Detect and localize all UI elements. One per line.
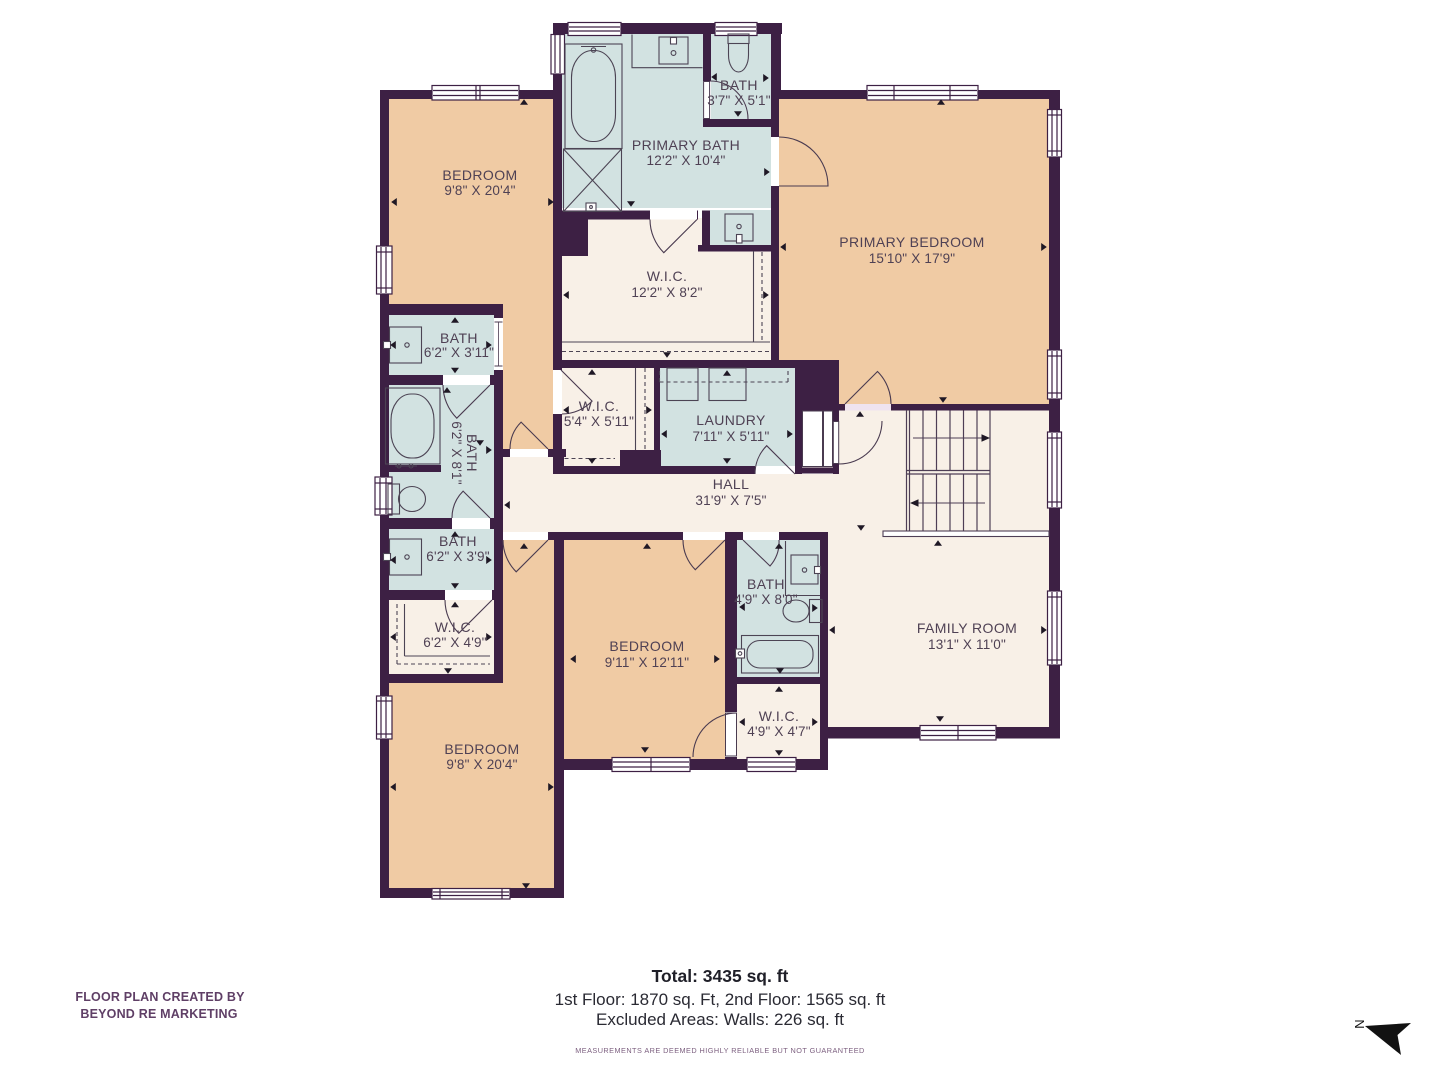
svg-text:BATH: BATH xyxy=(440,330,478,346)
svg-text:3'7" X 5'1": 3'7" X 5'1" xyxy=(707,93,770,108)
svg-text:6'2" X 3'9": 6'2" X 3'9" xyxy=(426,549,489,564)
svg-text:W.I.C.: W.I.C. xyxy=(759,708,800,724)
svg-text:9'8" X 20'4": 9'8" X 20'4" xyxy=(444,183,515,198)
svg-text:FAMILY ROOM: FAMILY ROOM xyxy=(917,620,1017,636)
svg-text:6'2" X 4'9": 6'2" X 4'9" xyxy=(423,635,486,650)
svg-text:Excluded Areas: Walls: 226 sq.: Excluded Areas: Walls: 226 sq. ft xyxy=(596,1010,844,1029)
svg-text:BEDROOM: BEDROOM xyxy=(444,741,519,757)
svg-text:7'11" X 5'11": 7'11" X 5'11" xyxy=(693,429,770,444)
svg-text:9'11" X 12'11": 9'11" X 12'11" xyxy=(605,655,690,670)
svg-text:N: N xyxy=(1352,1019,1367,1028)
svg-text:BEDROOM: BEDROOM xyxy=(442,167,517,183)
svg-text:1st Floor: 1870 sq. Ft, 2nd Fl: 1st Floor: 1870 sq. Ft, 2nd Floor: 1565 … xyxy=(555,990,886,1009)
svg-text:12'2" X 10'4": 12'2" X 10'4" xyxy=(647,153,726,168)
svg-text:13'1" X 11'0": 13'1" X 11'0" xyxy=(928,637,1006,652)
svg-text:4'9" X 4'7": 4'9" X 4'7" xyxy=(747,724,810,739)
svg-text:12'2" X 8'2": 12'2" X 8'2" xyxy=(631,285,702,300)
svg-text:PRIMARY BATH: PRIMARY BATH xyxy=(632,137,740,153)
svg-text:PRIMARY BEDROOM: PRIMARY BEDROOM xyxy=(839,234,985,250)
svg-text:W.I.C.: W.I.C. xyxy=(647,268,688,284)
svg-text:6'2" X 8'1": 6'2" X 8'1" xyxy=(449,421,464,484)
svg-text:6'2" X 3'11": 6'2" X 3'11" xyxy=(424,345,494,360)
svg-text:W.I.C.: W.I.C. xyxy=(435,619,476,635)
svg-text:15'10" X 17'9": 15'10" X 17'9" xyxy=(869,251,956,266)
svg-text:BEYOND RE MARKETING: BEYOND RE MARKETING xyxy=(80,1007,237,1021)
svg-text:BATH: BATH xyxy=(464,434,480,472)
svg-text:5'4" X 5'11": 5'4" X 5'11" xyxy=(564,414,634,429)
svg-text:Total: 3435 sq. ft: Total: 3435 sq. ft xyxy=(652,966,789,986)
svg-text:MEASUREMENTS ARE DEEMED HIGHLY: MEASUREMENTS ARE DEEMED HIGHLY RELIABLE … xyxy=(575,1046,865,1055)
svg-text:9'8" X 20'4": 9'8" X 20'4" xyxy=(446,757,517,772)
svg-text:31'9" X 7'5": 31'9" X 7'5" xyxy=(695,493,766,508)
svg-text:W.I.C.: W.I.C. xyxy=(579,398,620,414)
svg-text:BEDROOM: BEDROOM xyxy=(609,638,684,654)
svg-text:LAUNDRY: LAUNDRY xyxy=(696,412,766,428)
svg-text:BATH: BATH xyxy=(720,77,758,93)
svg-text:HALL: HALL xyxy=(713,476,750,492)
svg-text:BATH: BATH xyxy=(747,576,785,592)
svg-text:FLOOR PLAN CREATED BY: FLOOR PLAN CREATED BY xyxy=(75,990,245,1004)
